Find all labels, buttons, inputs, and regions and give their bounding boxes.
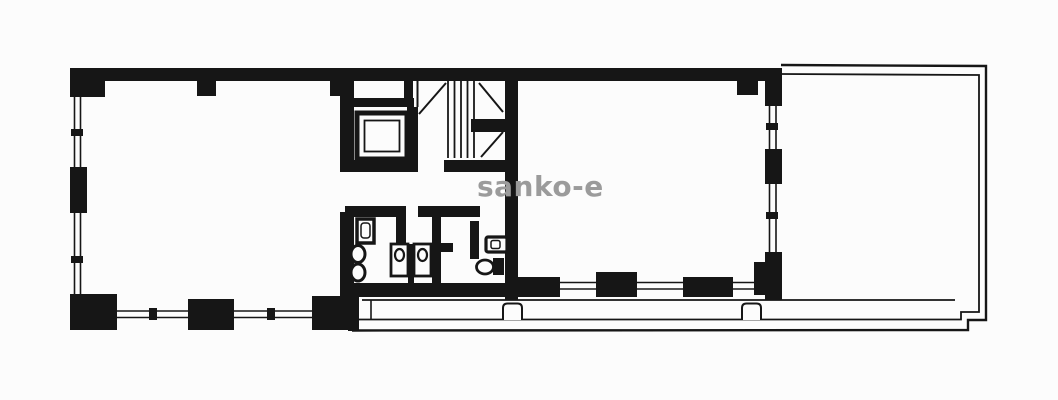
restroom-wall xyxy=(418,206,480,217)
bottom-left-corner-column xyxy=(70,294,117,330)
staircase xyxy=(418,79,519,172)
elevator xyxy=(343,107,418,172)
toilet xyxy=(418,249,427,261)
window-mullion xyxy=(71,256,83,263)
left-wall-column xyxy=(70,167,87,213)
urinal xyxy=(351,264,365,281)
core-bottom-wall xyxy=(343,283,518,297)
balcony-pillar-notch xyxy=(742,304,761,321)
restroom-wall-stub xyxy=(441,243,453,252)
top-wall-column xyxy=(737,81,758,95)
window-mullion xyxy=(267,308,275,320)
window-mullion xyxy=(71,129,83,136)
restroom-divider-wall xyxy=(432,206,441,286)
bottom-wall-column xyxy=(312,296,355,330)
top-wall xyxy=(70,68,782,81)
floor-plan: sanko-e xyxy=(0,0,1058,400)
pipe-shaft xyxy=(352,79,414,107)
window-mullion xyxy=(149,308,157,320)
left-room-windows xyxy=(71,95,314,320)
restroom-wall xyxy=(345,206,398,217)
top-left-corner-column xyxy=(70,68,105,97)
restroom-wall-stub xyxy=(396,206,406,244)
mens-restroom xyxy=(345,206,441,286)
core-left-wall-upper xyxy=(340,68,354,172)
stair-break-line xyxy=(481,132,503,157)
window-mullion xyxy=(766,123,778,130)
south-balcony xyxy=(348,292,955,331)
bottom-wall-column xyxy=(188,299,234,330)
top-wall-column xyxy=(197,81,216,96)
sink xyxy=(486,237,507,252)
restroom-partition xyxy=(470,221,479,259)
urinal xyxy=(351,246,365,263)
right-wall-column xyxy=(765,149,782,184)
bottom-wall-block xyxy=(596,272,637,297)
elevator-bottom-wall xyxy=(343,160,418,172)
shaft-wall xyxy=(352,98,414,107)
bottom-wall-block xyxy=(683,277,733,297)
right-wall-corner-column xyxy=(765,68,782,106)
toilet xyxy=(477,260,494,274)
stair-break-line xyxy=(479,83,503,112)
stair-landing-wall xyxy=(471,119,505,132)
watermark: sanko-e xyxy=(477,170,604,203)
balcony-pillar-notch xyxy=(503,304,522,321)
bottom-wall-block xyxy=(518,277,560,297)
interior-column xyxy=(754,262,782,295)
stair-break-line xyxy=(419,83,446,114)
window-mullion xyxy=(766,212,778,219)
toilet xyxy=(395,249,404,261)
